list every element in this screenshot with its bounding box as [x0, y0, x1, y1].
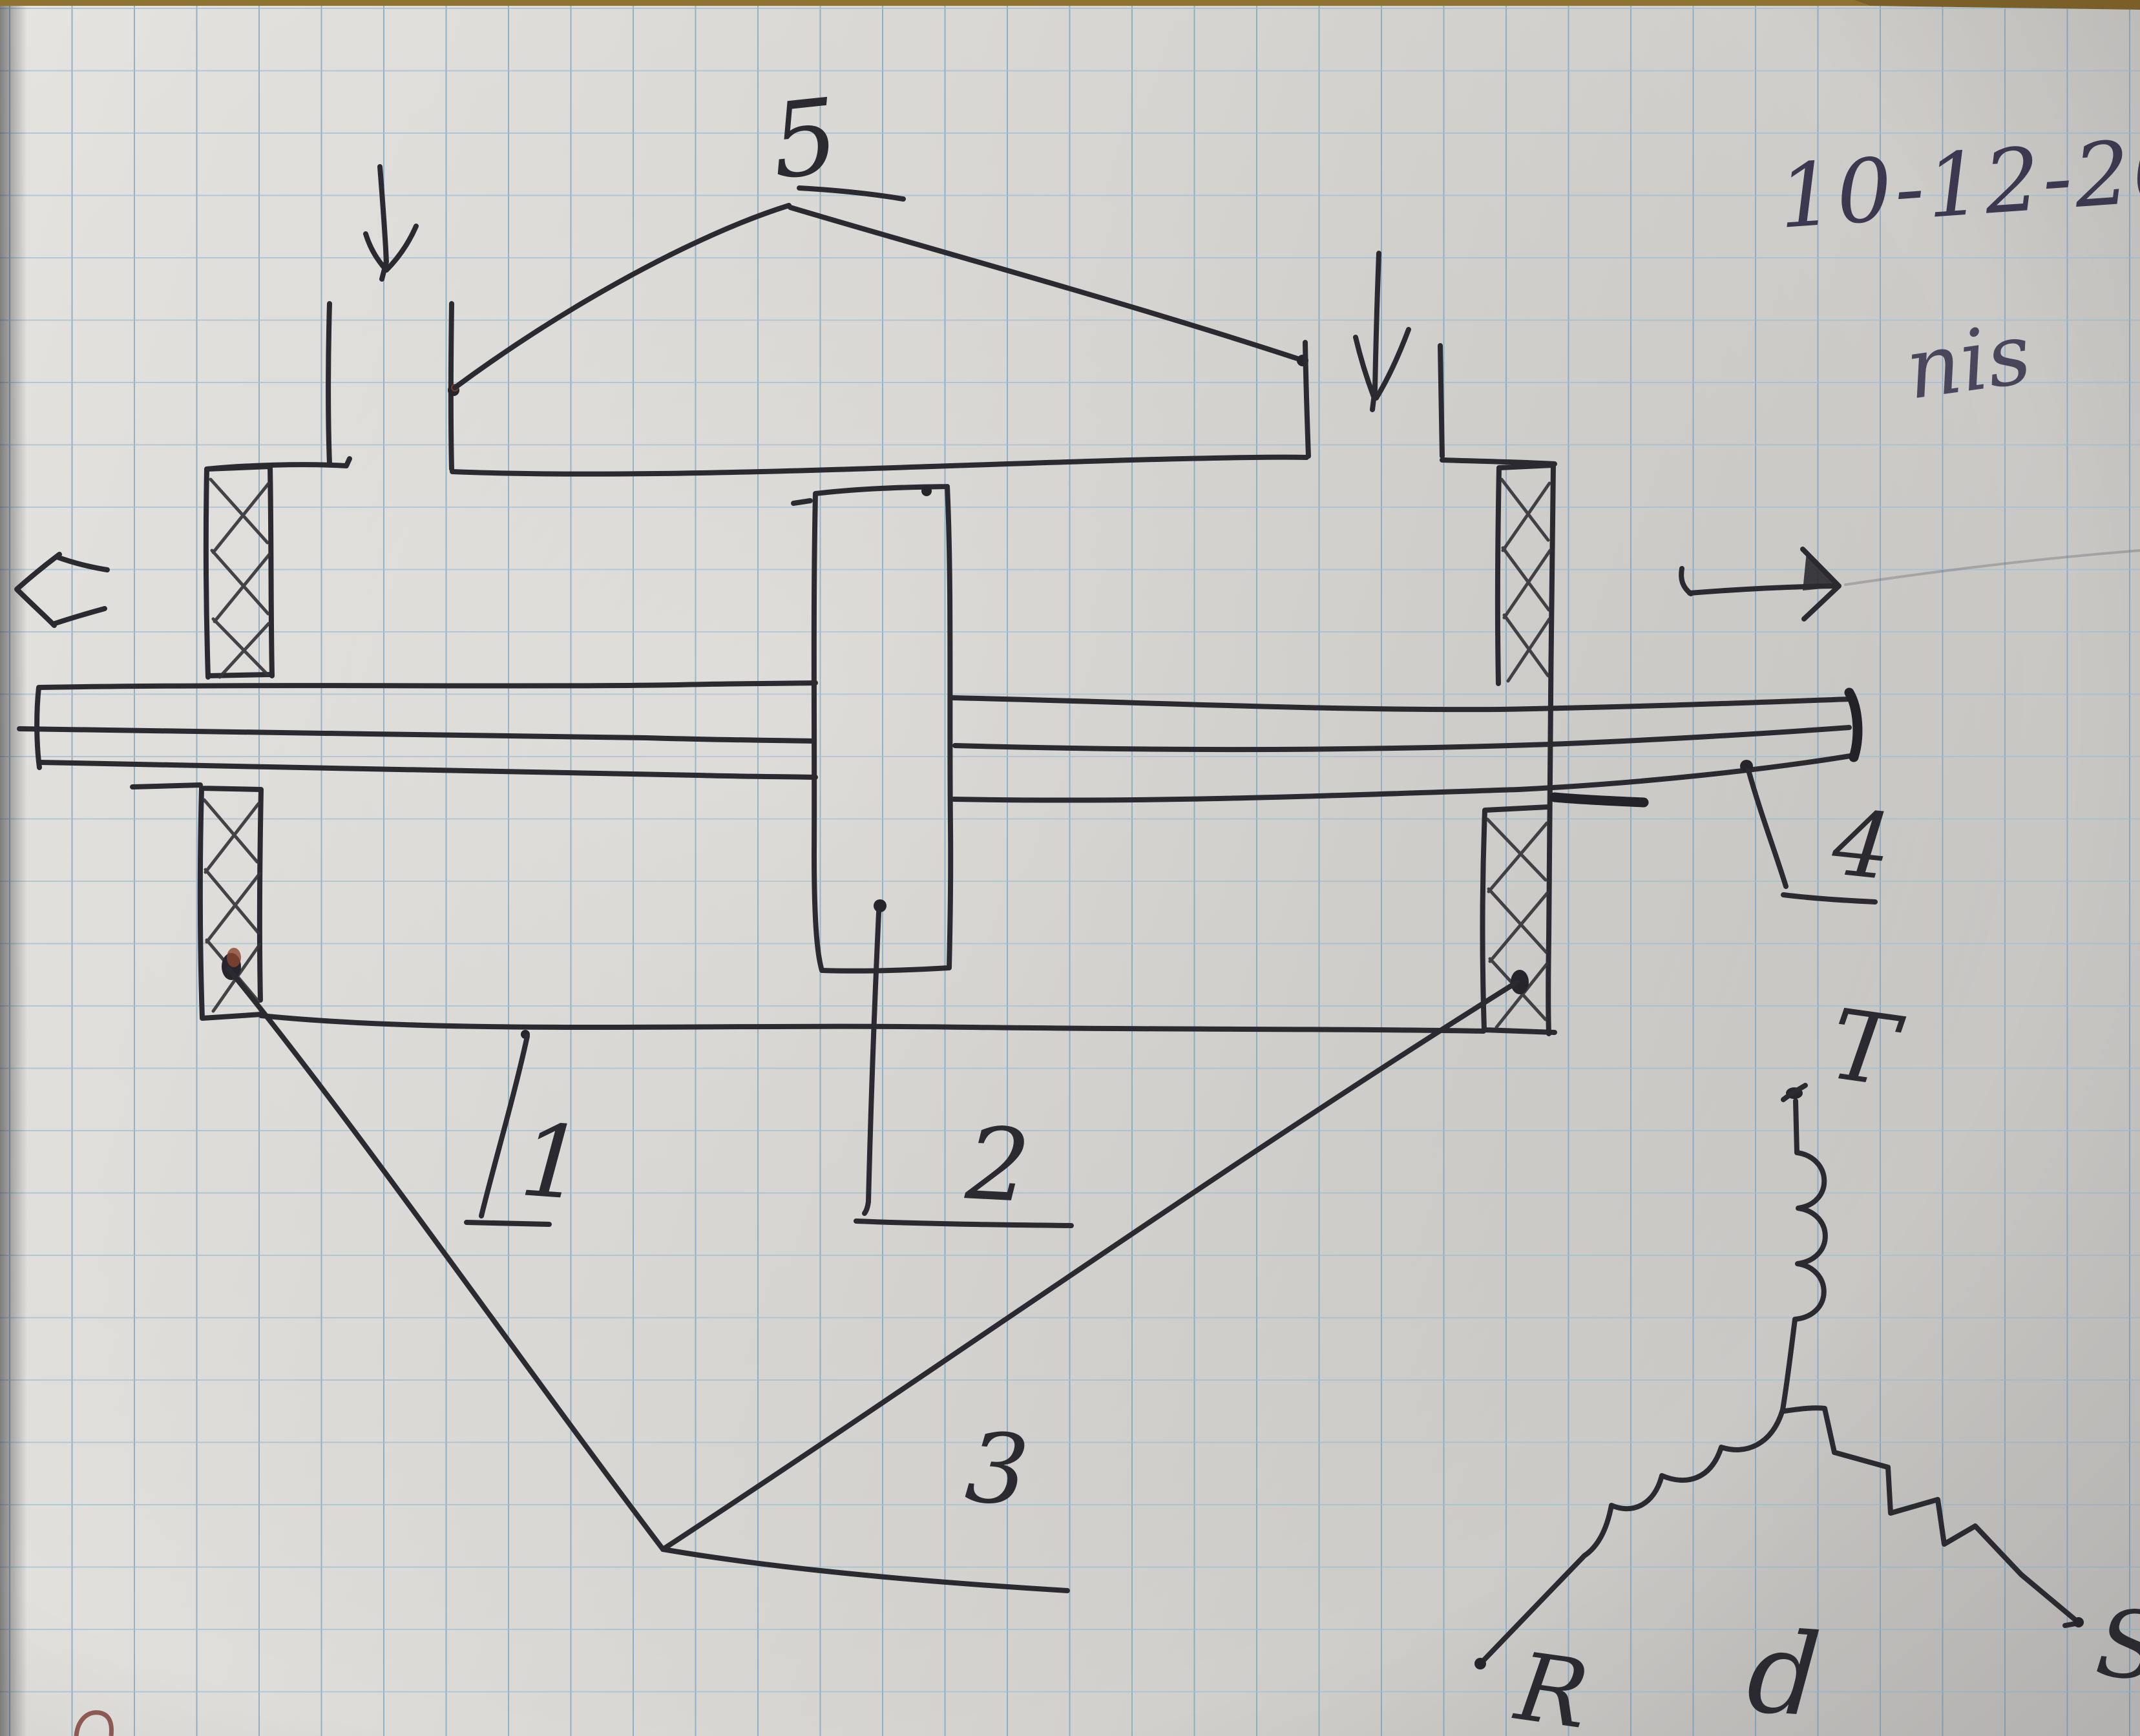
sketch-canvas: 5 1 2 3 4 T R S d 10-12-2023 nis	[0, 0, 2140, 1736]
phase-S-terminal-dot	[2073, 1617, 2084, 1627]
short-dash-below-shaft	[1555, 797, 1644, 802]
disc-top-dash	[793, 501, 810, 503]
center-label-d: d	[1743, 1607, 1825, 1736]
rust-blob	[227, 948, 241, 967]
right-inlet-left-wall	[1305, 342, 1308, 456]
part-label-5: 5	[766, 76, 844, 203]
left-inlet-left-wall	[328, 304, 330, 464]
phase-R-terminal-dot	[1474, 1658, 1486, 1669]
left-edge-shadow	[0, 0, 27, 1736]
shaft-left-end-cap	[37, 687, 39, 768]
notebook-top-edge	[0, 0, 2140, 6]
photo-vignette	[0, 0, 2140, 1736]
right-inlet-right-wall	[1440, 346, 1442, 456]
notebook-page: 5 1 2 3 4 T R S d 10-12-2023 nis	[0, 0, 2140, 1736]
phase-T-lead	[1796, 1101, 1797, 1153]
part-label-3: 3	[961, 1411, 1033, 1529]
part-label-4: 4	[1827, 790, 1896, 901]
bottom-left-ledge	[132, 785, 200, 787]
part-label-1: 1	[516, 1102, 588, 1222]
shaft-top-left	[40, 683, 815, 687]
part-label-2: 2	[963, 1105, 1033, 1225]
signature-scribble: nis	[1900, 304, 2037, 419]
disc-corner-dot	[921, 486, 932, 496]
